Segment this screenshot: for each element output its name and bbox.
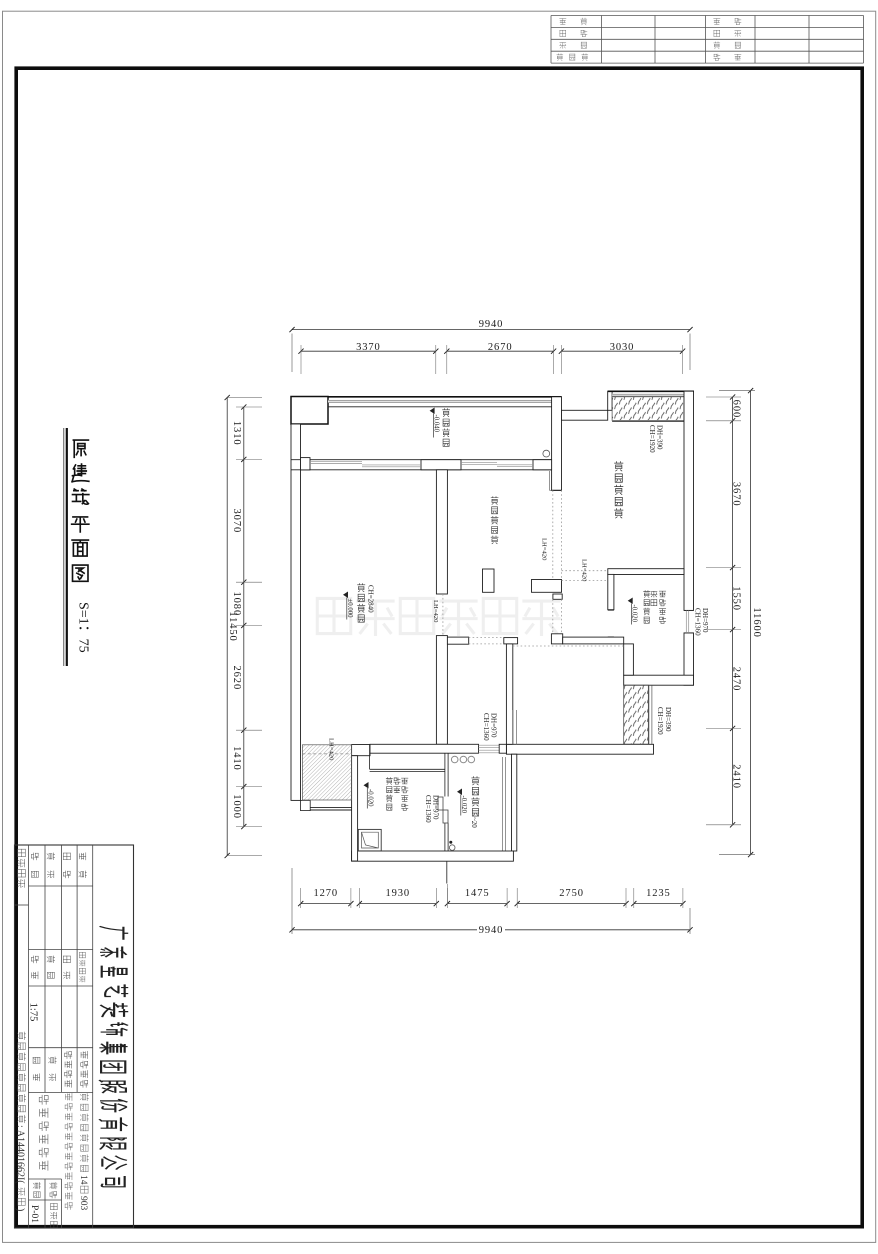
svg-text:DH=390: DH=390 [655, 425, 663, 450]
svg-text:1310: 1310 [231, 421, 242, 446]
svg-text:2620: 2620 [231, 665, 242, 690]
svg-text:1:75: 1:75 [28, 1003, 39, 1022]
svg-text:3370: 3370 [356, 342, 381, 353]
svg-text:LH=420: LH=420 [580, 559, 587, 582]
svg-text:CH=1360: CH=1360 [482, 713, 490, 741]
svg-text:CH=2840: CH=2840 [366, 585, 374, 613]
svg-text:: A14401662I(: : A14401662I( [15, 1125, 26, 1184]
svg-text:1235: 1235 [646, 888, 671, 899]
svg-text:2750: 2750 [559, 888, 584, 899]
svg-text:1270: 1270 [313, 888, 338, 899]
svg-text:1475: 1475 [465, 888, 490, 899]
svg-text:9940: 9940 [479, 319, 504, 330]
svg-text:2670: 2670 [488, 342, 513, 353]
svg-text:DH=970: DH=970 [431, 795, 439, 820]
svg-text:1930: 1930 [385, 888, 410, 899]
svg-text:1410: 1410 [231, 746, 242, 771]
svg-text:DH=970: DH=970 [490, 713, 498, 738]
svg-text:2470: 2470 [731, 667, 742, 692]
svg-text:11600: 11600 [751, 607, 762, 637]
svg-text:CH=1360: CH=1360 [424, 795, 432, 823]
svg-text:903: 903 [78, 1196, 88, 1211]
svg-text:2410: 2410 [731, 764, 742, 789]
svg-text:14: 14 [78, 1175, 88, 1185]
svg-text:600: 600 [731, 400, 742, 418]
svg-text:LH=420: LH=420 [432, 600, 439, 623]
svg-text:1000: 1000 [231, 794, 242, 819]
svg-text:3070: 3070 [231, 508, 242, 533]
svg-text:3030: 3030 [610, 342, 635, 353]
svg-text:11450: 11450 [227, 611, 238, 641]
svg-text:9940: 9940 [479, 925, 504, 936]
svg-text:CH=1920: CH=1920 [656, 707, 664, 735]
svg-text:LH=420: LH=420 [327, 738, 334, 761]
svg-text:DH=390: DH=390 [664, 707, 672, 732]
svg-text:DH=970: DH=970 [701, 608, 709, 633]
svg-text:P-01: P-01 [29, 1205, 39, 1223]
svg-text:CH=1360: CH=1360 [693, 608, 701, 636]
svg-text:CH=1920: CH=1920 [648, 425, 656, 453]
svg-text:3670: 3670 [731, 482, 742, 507]
svg-text:~20: ~20 [470, 817, 478, 828]
svg-text:S=1：75: S=1：75 [76, 602, 91, 653]
svg-text:LH=420: LH=420 [541, 538, 548, 561]
svg-text:): ) [15, 1208, 26, 1211]
svg-text:1550: 1550 [731, 586, 742, 611]
